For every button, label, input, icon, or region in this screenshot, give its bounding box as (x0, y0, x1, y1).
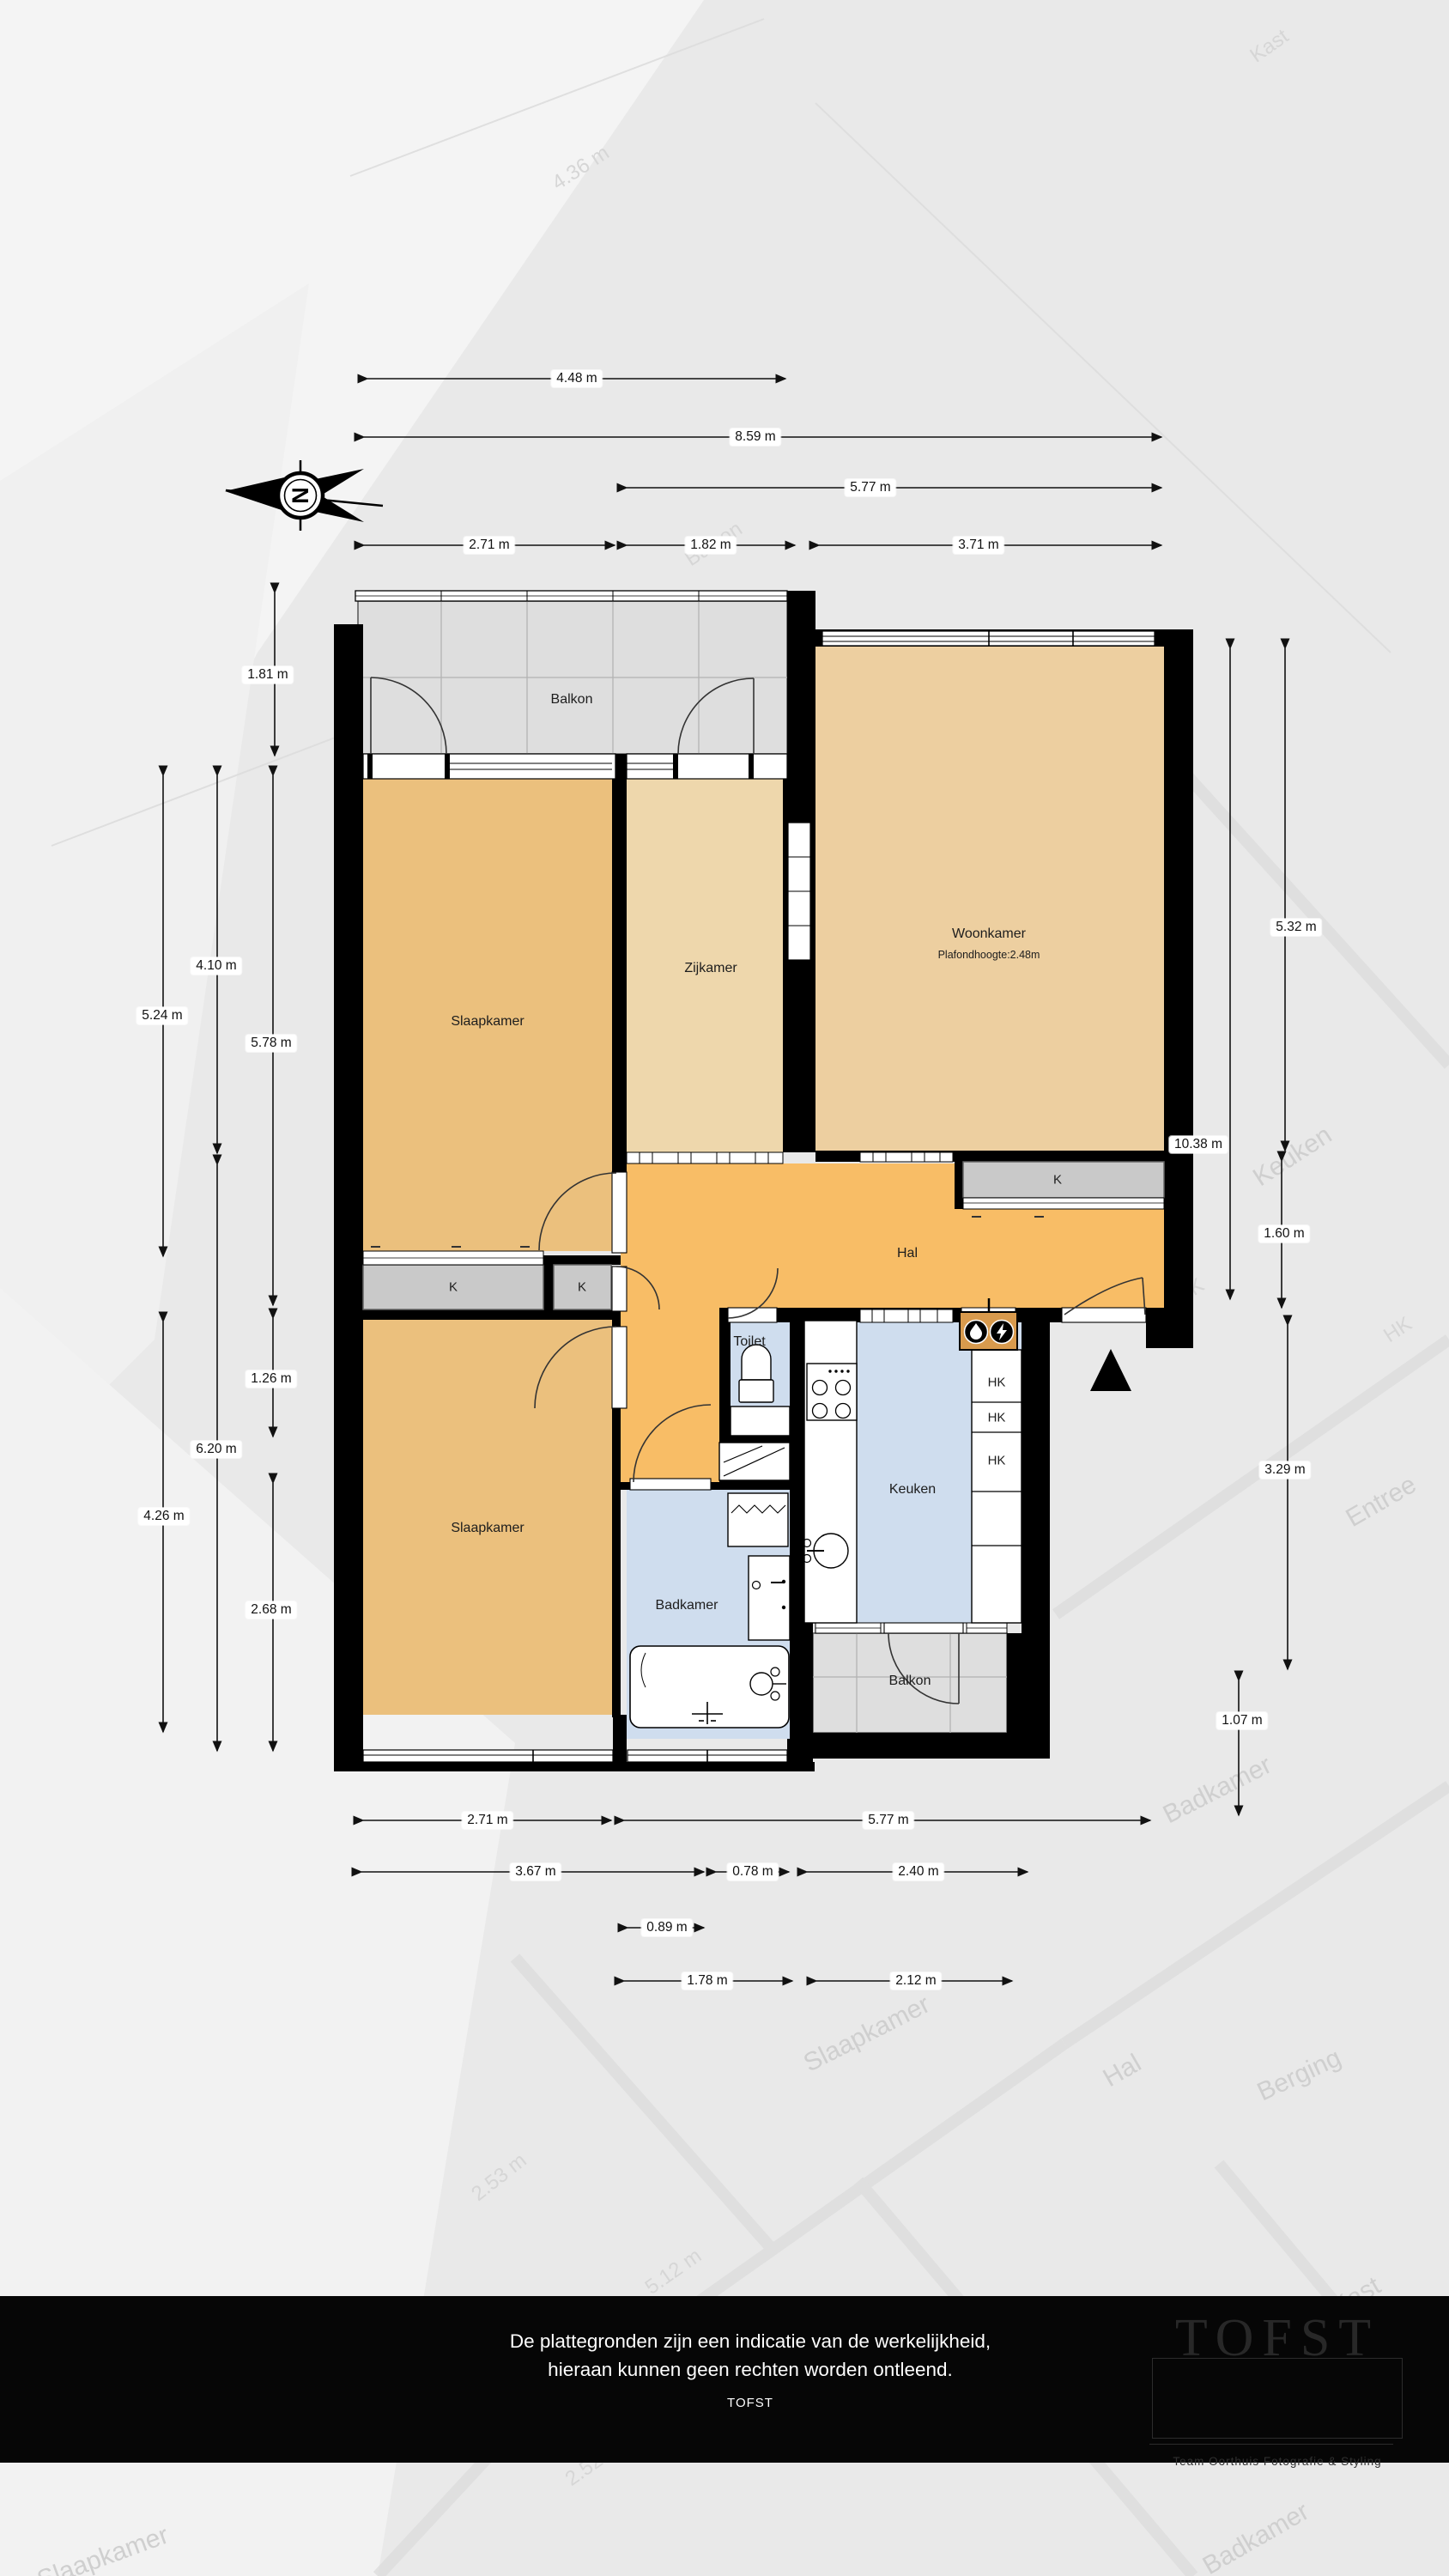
tofst-logo-subtitle: Team Oorthuis Fotografie & Styling (1153, 2455, 1402, 2468)
kast-woonkamer (963, 1162, 1164, 1198)
dim-label: 2.71 m (464, 537, 514, 554)
closet-label-k2: K (578, 1280, 586, 1295)
room-label-balkon-top: Balkon (551, 692, 593, 708)
room-label-slaapkamer-boven: Slaapkamer (451, 1014, 524, 1030)
cabinet-label-hk1: HK (988, 1376, 1006, 1390)
tofst-logo: TOFST Team Oorthuis Fotografie & Styling (1152, 2308, 1403, 2437)
dim-label: 4.48 m (551, 370, 602, 387)
floorplan-drawing: N (0, 0, 1449, 2576)
entrance-door (1062, 1308, 1146, 1322)
entrance-arrow-icon (1090, 1349, 1131, 1391)
dim-label: 10.38 m (1169, 1136, 1228, 1153)
dim-label: 1.26 m (246, 1370, 296, 1388)
room-label-zijkamer: Zijkamer (684, 961, 737, 976)
dim-label: 5.77 m (863, 1812, 913, 1829)
dim-label: 2.40 m (893, 1863, 943, 1880)
toilet-bowl-icon (742, 1345, 771, 1380)
kitchen-cabinets (972, 1350, 1022, 1623)
dim-label: 3.29 m (1259, 1461, 1310, 1479)
hal-arm-floor (621, 1308, 719, 1482)
washbasin-icon (749, 1556, 790, 1640)
north-arrow-icon: N (225, 460, 383, 531)
tofst-logo-frame: Team Oorthuis Fotografie & Styling (1152, 2358, 1403, 2439)
disclaimer-line1: De plattegronden zijn een indicatie van … (510, 2327, 991, 2355)
room-label-balkon-onder: Balkon (889, 1674, 931, 1689)
cabinet-label-hk2: HK (988, 1411, 1006, 1425)
toilet-door (728, 1308, 777, 1322)
dim-label: 1.07 m (1216, 1712, 1267, 1729)
disclaimer: De plattegronden zijn een indicatie van … (510, 2327, 991, 2417)
floorplan-page: 4.36 m Kast Balkon Keuken HK HK Entree B… (0, 0, 1449, 2576)
balkon-onder-door (884, 1623, 963, 1633)
dim-label: 3.71 m (953, 537, 1003, 554)
room-label-slaapkamer-onder: Slaapkamer (451, 1521, 524, 1536)
dim-label: 4.26 m (138, 1508, 189, 1525)
dim-label: 8.59 m (730, 428, 780, 446)
dim-label: 6.20 m (191, 1441, 241, 1458)
closet-label-k1: K (449, 1280, 458, 1295)
dim-label: 5.24 m (136, 1007, 187, 1024)
tofst-logo-divider (1149, 2444, 1393, 2445)
slaapkamer-onder-door (612, 1327, 627, 1408)
room-label-hal: Hal (897, 1246, 918, 1261)
cabinet-label-hk3: HK (988, 1454, 1006, 1468)
woonkamer-floor (815, 647, 1164, 1151)
footer-bar: De plattegronden zijn een indicatie van … (0, 2296, 1449, 2463)
dim-label: 3.67 m (510, 1863, 561, 1880)
kast-midden-door (612, 1267, 627, 1311)
dim-label: 1.78 m (682, 1972, 732, 1990)
room-label-badkamer: Badkamer (656, 1598, 718, 1613)
dim-label: 4.10 m (191, 957, 241, 975)
compass-letter: N (288, 487, 313, 504)
bathtub-icon (630, 1646, 789, 1728)
disclaimer-line3: TOFST (510, 2389, 991, 2417)
dim-label: 2.12 m (890, 1972, 941, 1990)
room-label-woonkamer-sub: Plafondhoogte:2.48m (938, 949, 1040, 961)
meter-cupboard (960, 1312, 1017, 1350)
dim-label: 5.78 m (246, 1035, 296, 1052)
room-label-toilet: Toilet (733, 1334, 765, 1350)
badkamer-door (630, 1479, 711, 1490)
dim-label: 5.32 m (1270, 919, 1321, 936)
dim-label: 0.89 m (641, 1919, 692, 1936)
disclaimer-line2: hieraan kunnen geen rechten worden ontle… (510, 2355, 991, 2384)
dim-label: 5.77 m (845, 479, 895, 496)
dim-label: 1.81 m (242, 666, 293, 683)
washing-machine-icon (728, 1493, 788, 1546)
dim-label: 0.78 m (727, 1863, 778, 1880)
dim-label: 2.68 m (246, 1601, 296, 1619)
dim-label: 1.82 m (685, 537, 736, 554)
room-label-woonkamer: Woonkamer (952, 927, 1026, 942)
closet-label-k3: K (1053, 1173, 1062, 1188)
dim-label: 1.60 m (1258, 1225, 1309, 1242)
room-label-keuken: Keuken (889, 1482, 936, 1498)
slaapkamer-boven-door (612, 1172, 627, 1253)
dim-label: 2.71 m (462, 1812, 512, 1829)
slaapkamer-onder-floor (363, 1320, 612, 1715)
